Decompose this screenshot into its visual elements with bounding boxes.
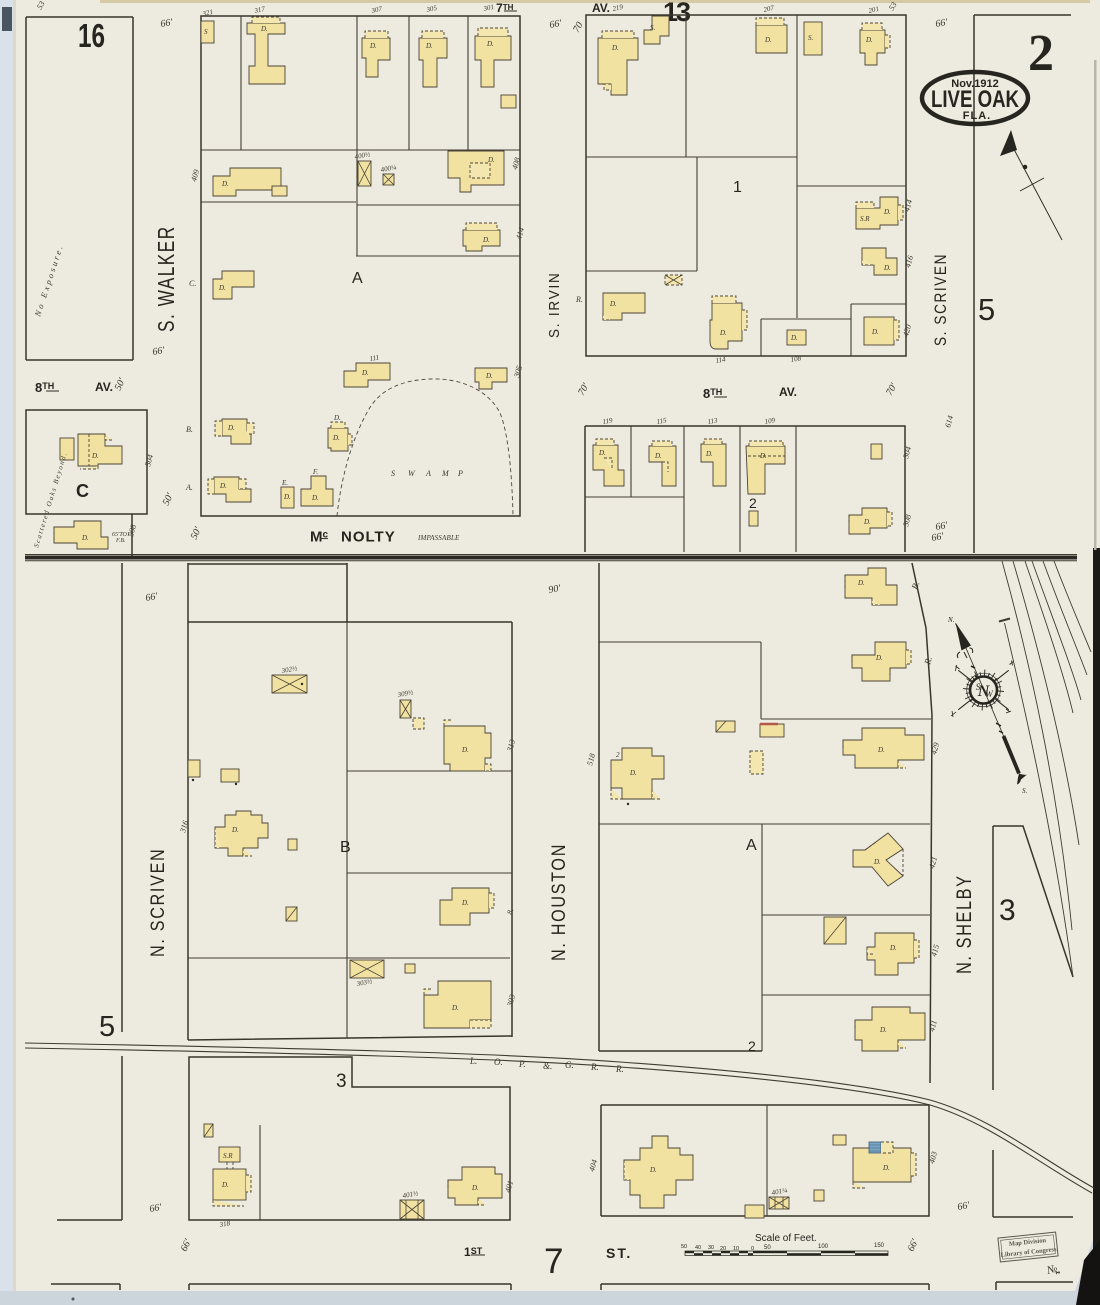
svg-text:F.: F. [312,468,318,476]
svg-text:D.: D. [227,424,235,432]
svg-text:O.: O. [494,1057,503,1067]
svg-text:50: 50 [764,1245,771,1251]
svg-text:D.: D. [486,40,494,48]
svg-text:2: 2 [749,495,757,511]
svg-text:D.: D. [221,1181,229,1189]
svg-text:AV.: AV. [95,380,113,394]
svg-text:2: 2 [616,751,620,759]
svg-text:D.: D. [877,746,885,754]
svg-text:B.: B. [186,425,193,434]
svg-text:111: 111 [369,353,380,363]
svg-text:2: 2 [748,1038,756,1054]
svg-text:3: 3 [336,1071,347,1092]
svg-text:R.: R. [590,1062,599,1072]
svg-text:D.: D. [451,1004,459,1012]
svg-text:D.: D. [260,25,268,33]
svg-text:D.: D. [218,284,226,292]
svg-text:D.: D. [598,449,606,457]
svg-text:D.: D. [283,493,291,501]
svg-text:G.: G. [565,1060,574,1070]
svg-text:D.: D. [865,36,873,44]
svg-text:D.: D. [461,899,469,907]
svg-text:D.: D. [482,236,490,244]
svg-text:D.: D. [361,369,369,377]
svg-text:D.: D. [611,44,619,52]
svg-text:LIVE OAK: LIVE OAK [931,86,1020,113]
svg-text:D.: D. [889,944,897,952]
svg-text:D.: D. [369,42,377,50]
svg-text:C.: C. [189,279,196,288]
svg-text:AV.: AV. [592,1,610,15]
svg-text:S. SCRIVEN: S. SCRIVEN [932,253,951,346]
svg-text:100: 100 [818,1244,829,1250]
svg-text:S: S [204,28,208,36]
svg-text:D.: D. [311,494,319,502]
svg-text:N. HOUSTON: N. HOUSTON [548,843,570,961]
svg-text:3: 3 [999,894,1016,927]
svg-text:&.: &. [543,1061,552,1071]
svg-text:D.: D. [219,482,227,490]
svg-text:S. IRVIN: S. IRVIN [546,271,563,338]
svg-text:N. SHELBY: N. SHELBY [952,874,975,974]
svg-text:2: 2 [1028,25,1054,82]
svg-text:D.: D. [231,826,239,834]
svg-text:S. WALKER: S. WALKER [155,225,180,332]
svg-text:D.: D. [333,414,341,422]
svg-text:D.: D. [221,180,229,188]
svg-text:D.: D. [764,36,772,44]
svg-text:IMPASSABLE: IMPASSABLE [417,534,460,542]
svg-text:NOLTY: NOLTY [341,529,396,546]
svg-text:S.R: S.R [860,215,870,223]
svg-text:R.: R. [615,1064,624,1074]
svg-text:S.: S. [650,24,656,32]
svg-text:150: 150 [874,1243,885,1249]
svg-text:B: B [340,839,351,856]
svg-text:D.: D. [879,1026,887,1034]
svg-text:D.: D. [654,452,662,460]
svg-text:R.: R. [575,295,583,304]
svg-text:S.: S. [808,34,814,42]
svg-text:5: 5 [978,292,995,327]
svg-text:D.: D. [629,769,637,777]
svg-text:7: 7 [544,1242,563,1281]
svg-text:D.: D. [873,858,881,866]
svg-text:D.: D. [485,372,493,380]
svg-text:D.: D. [719,329,727,337]
svg-text:D.: D. [91,452,99,460]
svg-text:D.: D. [487,156,495,164]
svg-text:5: 5 [99,1011,115,1043]
svg-text:Scale of Feet.: Scale of Feet. [755,1233,817,1244]
svg-text:D.: D. [609,300,617,308]
svg-text:1: 1 [733,179,742,196]
svg-text:D.: D. [471,1184,479,1192]
svg-text:L.: L. [469,1056,477,1066]
svg-text:D.: D. [332,434,340,442]
svg-text:D.: D. [883,208,891,216]
svg-text:A: A [746,837,757,854]
svg-text:E.: E. [281,479,288,487]
svg-text:D.: D. [759,452,767,460]
svg-text:50: 50 [681,1244,687,1250]
svg-text:D.: D. [705,450,713,458]
svg-text:40: 40 [695,1245,701,1251]
svg-text:P.: P. [518,1059,526,1069]
svg-text:N.: N. [947,616,955,624]
svg-text:D.: D. [863,518,871,526]
svg-text:C: C [76,481,89,501]
svg-text:S.: S. [1022,787,1028,795]
svg-text:D.: D. [81,534,89,542]
svg-text:AV.: AV. [779,385,797,399]
svg-text:D.: D. [649,1166,657,1174]
svg-text:F.B.: F.B. [115,538,126,544]
svg-text:D.: D. [871,328,879,336]
svg-text:D.: D. [461,746,469,754]
svg-text:D.: D. [790,334,798,342]
svg-text:S: S [976,682,981,692]
svg-text:16: 16 [78,17,105,54]
svg-text:D.: D. [875,654,883,662]
svg-text:D.: D. [857,579,865,587]
svg-text:D.: D. [425,42,433,50]
svg-text:ST.: ST. [606,1245,632,1261]
svg-text:30: 30 [708,1245,714,1251]
svg-text:S.R: S.R [223,1152,233,1160]
svg-text:D.: D. [882,1164,890,1172]
svg-text:FLA.: FLA. [963,110,991,122]
svg-text:A.: A. [185,483,193,492]
svg-text:D.: D. [883,264,891,272]
svg-text:A: A [352,270,363,287]
svg-text:N. SCRIVEN: N. SCRIVEN [147,848,169,957]
